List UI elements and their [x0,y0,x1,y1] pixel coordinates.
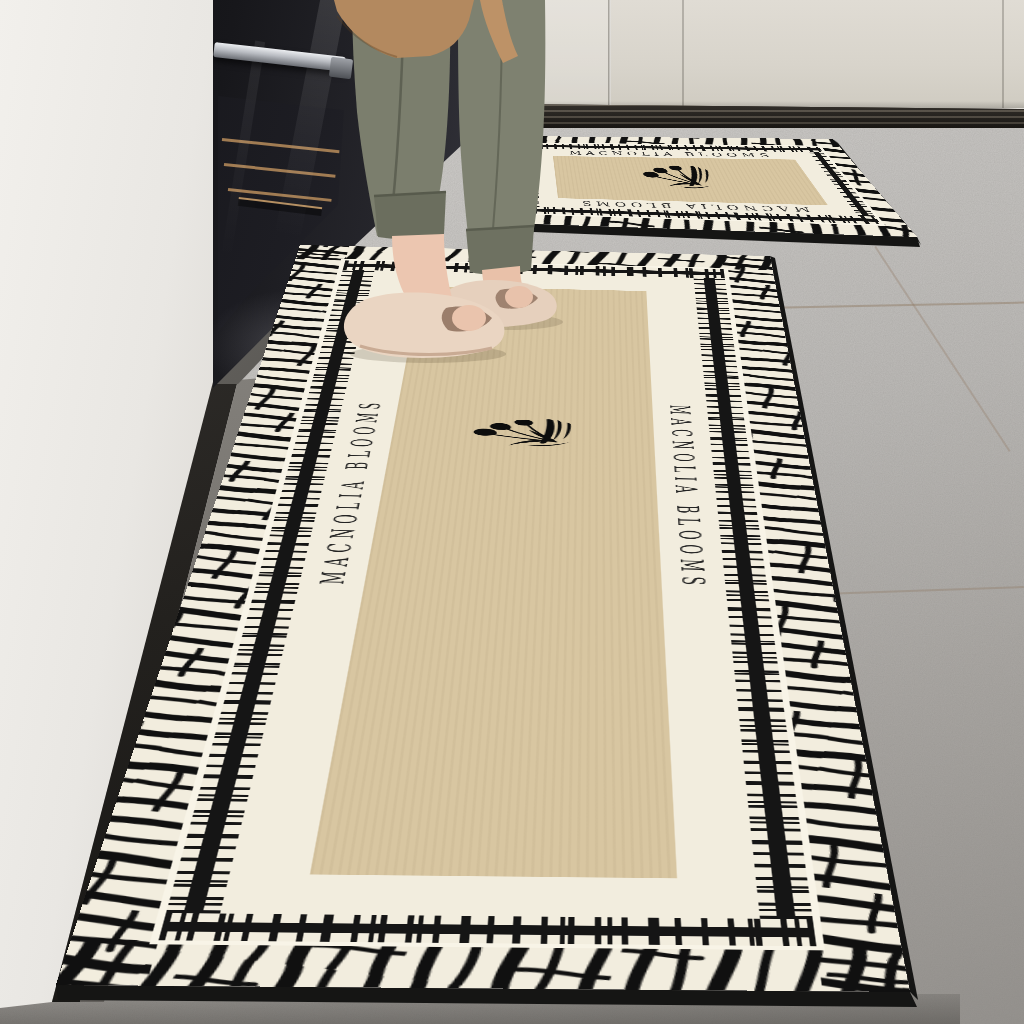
mat-center-field [553,156,828,205]
cabinet-door-seam [1002,0,1004,108]
oven-handle-bracket [329,57,353,80]
kitchen-cabinets [430,0,1024,108]
cabinet-corner-seam [608,0,611,108]
barcode-border-left [523,148,540,206]
tulip-motif [630,164,729,192]
kitchen-scene: MACNOLIA BLOOMS MACNOLIA BLOOMS [0,0,1024,1024]
cabinet-pillar [497,0,610,108]
cabinet-door-seam [682,0,684,108]
tulip-motif [455,416,597,454]
